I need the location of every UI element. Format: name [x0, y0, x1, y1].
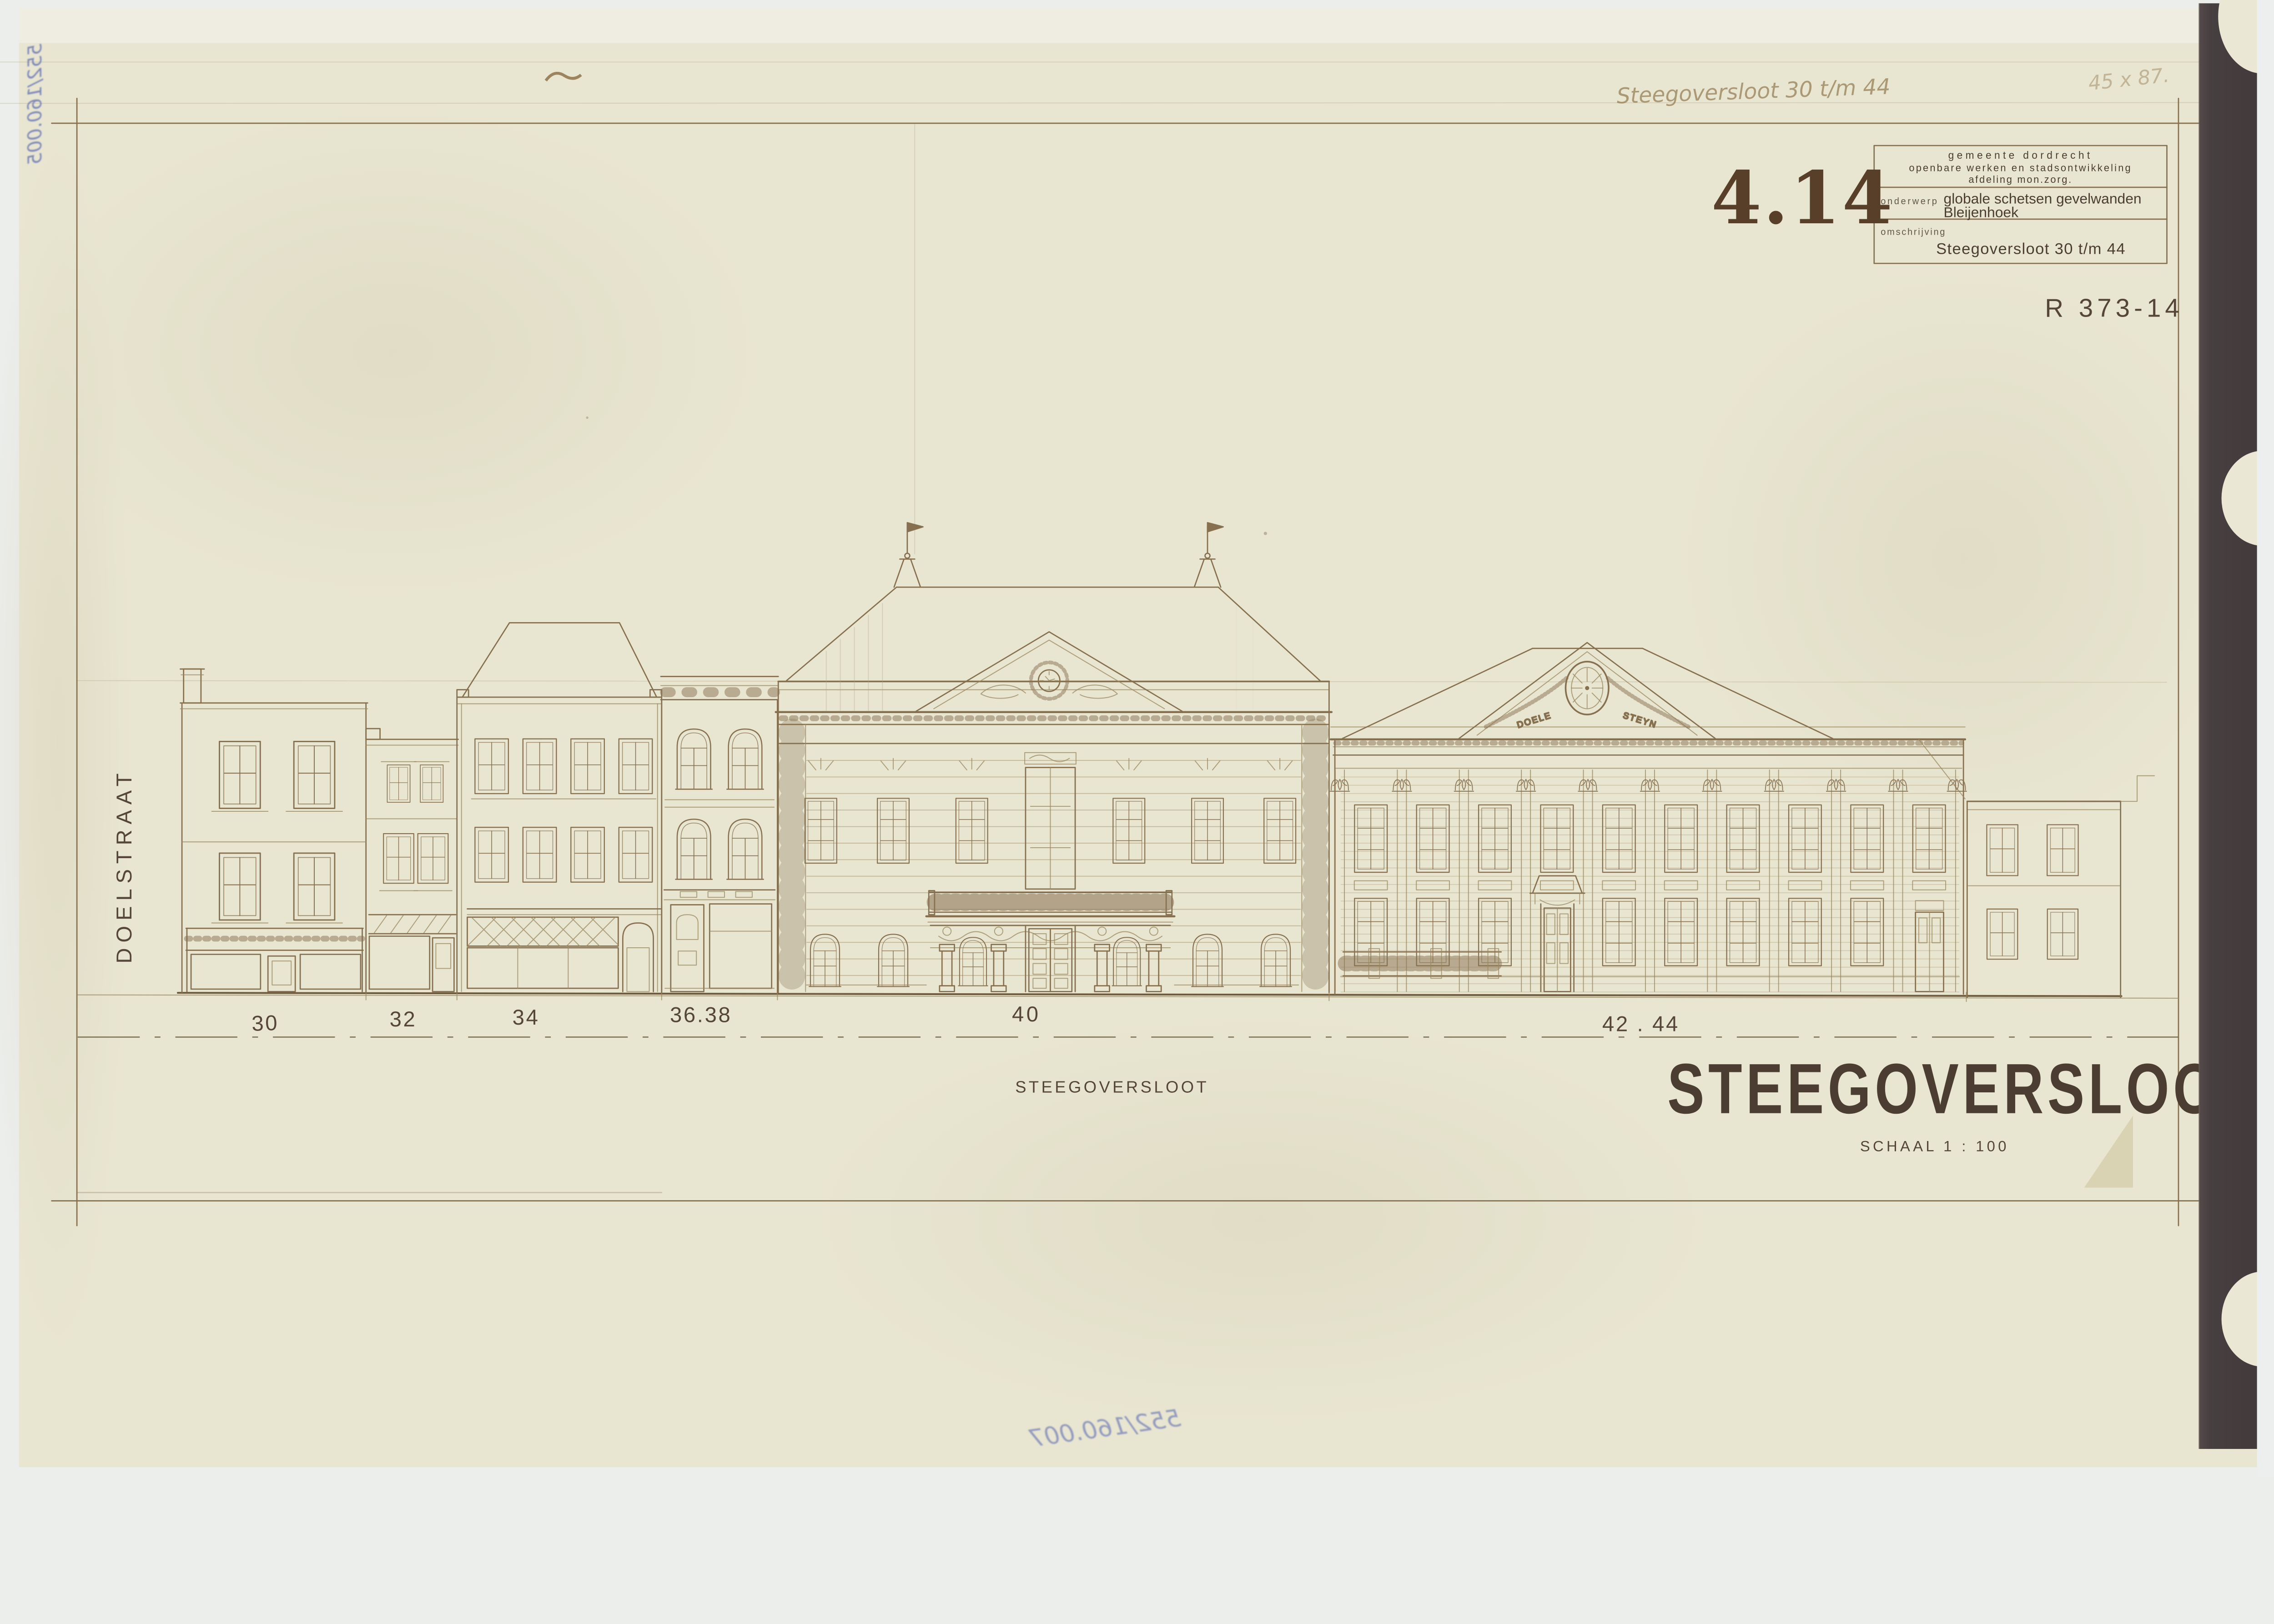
main-entrance-door — [1026, 926, 1075, 992]
main-title: STEEGOVERSLOOT — [1667, 1049, 2258, 1128]
house-number-36-38: 36.38 — [670, 1003, 732, 1027]
house-number-32: 32 — [390, 1007, 417, 1031]
title-block-agency-2: openbare werken en stadsontwikkeling — [1909, 162, 2132, 173]
drawing-number-stamp: 4.14 — [1711, 156, 1894, 241]
house-number-34: 34 — [513, 1006, 540, 1030]
inventory-note-top-left: 552/160.005 — [24, 43, 46, 165]
house-number-30: 30 — [251, 1011, 279, 1036]
house-number-42-44: 42 . 44 — [1602, 1012, 1680, 1036]
house-number-40: 40 — [1012, 1002, 1041, 1026]
street-label: STEEGOVERSLOOT — [1015, 1077, 1209, 1096]
title-block-subject-2: Bleijenhoek — [1944, 204, 2019, 220]
cross-street-label: DOELSTRAAT — [112, 768, 136, 964]
title-block-agency-1: gemeente dordrecht — [1948, 149, 2093, 161]
title-block-agency-3: afdeling mon.zorg. — [1968, 174, 2073, 185]
reference-number: R 373-14 — [2045, 293, 2183, 322]
scanned-drawing-sheet: gemeente dordrecht openbare werken en st… — [0, 0, 2274, 1477]
scale-label: SCHAAL 1 : 100 — [1860, 1137, 2009, 1154]
svg-text:552/160.005: 552/160.005 — [24, 43, 46, 165]
title-block-description-value: Steegoversloot 30 t/m 44 — [1936, 240, 2126, 257]
binding-band — [2199, 0, 2274, 1477]
